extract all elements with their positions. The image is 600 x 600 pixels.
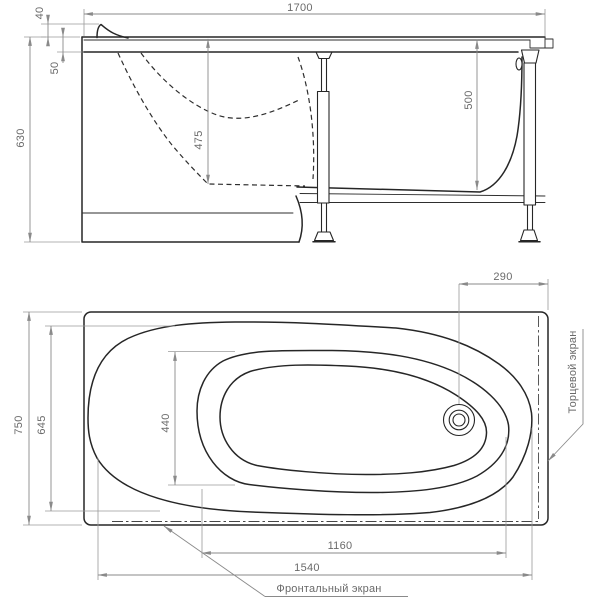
dim-depth-head: 475	[193, 39, 208, 184]
dim-text-440: 440	[160, 413, 172, 432]
dim-bowl-outer-width: 645	[36, 326, 175, 511]
dim-text-475: 475	[193, 130, 205, 149]
frame-rail	[300, 194, 545, 203]
adjustable-foot	[521, 230, 538, 241]
dim-apron-drop: 50	[49, 28, 84, 74]
frame-leg-right	[516, 50, 540, 242]
end-panel-callout: Торцевой экран	[548, 329, 583, 461]
dim-text-50: 50	[49, 62, 61, 75]
dim-text-630: 630	[15, 128, 27, 147]
dim-text-290: 290	[493, 271, 512, 283]
dim-text-750: 750	[13, 415, 25, 434]
dim-bowl-length: 1160	[202, 437, 506, 558]
dim-apron-length: 1540	[98, 428, 532, 580]
hidden-bowl-far-edge	[141, 53, 299, 118]
dim-text-1700: 1700	[287, 2, 313, 14]
deck-outline	[84, 312, 548, 525]
drain-icon	[444, 405, 475, 436]
frame-leg-left	[313, 52, 335, 242]
adjustable-foot	[315, 232, 334, 241]
tub-rim-band	[82, 37, 553, 52]
end-panel-label: Торцевой экран	[567, 331, 579, 414]
dim-overall-height: 630	[15, 37, 80, 242]
front-panel-callout: Фронтальный экран	[164, 526, 408, 597]
dim-text-500: 500	[463, 90, 475, 109]
dim-text-40: 40	[34, 7, 46, 20]
drawing-canvas: 1700 40 50 630 475	[0, 0, 600, 600]
dim-drain-offset: 290	[459, 271, 548, 310]
drain-pipe-detail	[516, 58, 522, 70]
plan-view: 290 750 645 440 1160	[13, 271, 583, 597]
side-view: 1700 40 50 630 475	[15, 2, 553, 242]
dim-depth-foot: 500	[463, 40, 477, 190]
dim-text-645: 645	[36, 415, 48, 434]
front-panel-label: Фронтальный экран	[276, 583, 381, 595]
dim-side-length: 1700	[84, 2, 545, 36]
headrest-profile	[97, 25, 128, 39]
bathtub-technical-drawing: 1700 40 50 630 475	[0, 0, 600, 600]
bowl-bottom-profile	[297, 57, 522, 192]
hidden-bowl-near-wall	[118, 53, 305, 186]
hidden-bowl-end-wall	[298, 57, 314, 179]
dim-text-1540: 1540	[294, 562, 320, 574]
dim-text-1160: 1160	[328, 540, 353, 552]
